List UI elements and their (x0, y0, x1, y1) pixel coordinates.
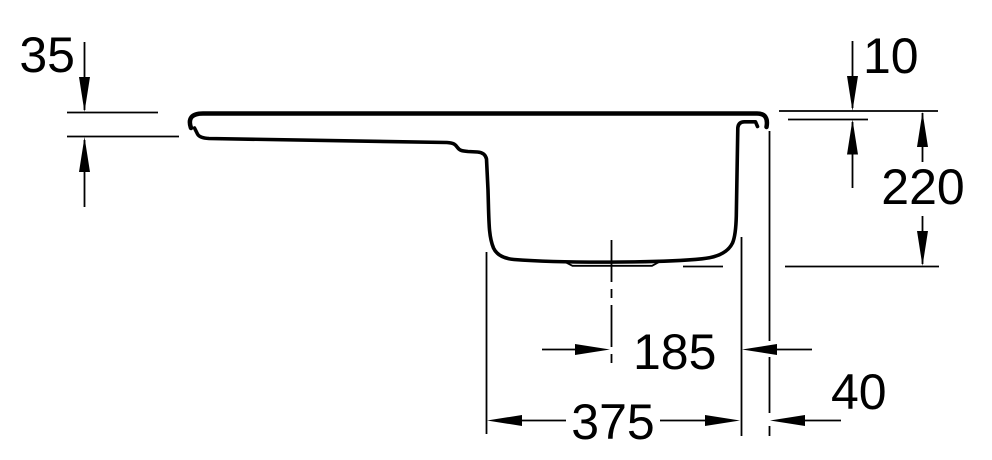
arrow-down (847, 76, 858, 111)
dimension-label-220: 220 (881, 159, 964, 215)
dimension-label-185: 185 (633, 324, 716, 380)
sink-top-surface (190, 114, 767, 129)
arrow-left (487, 415, 522, 426)
dimension-label-10: 10 (863, 28, 919, 84)
arrow-right (575, 344, 610, 355)
technical-drawing-canvas: 35 10 220 185 (0, 0, 992, 460)
dimension-185: 185 (542, 324, 812, 380)
dimension-375-40: 375 40 (487, 131, 887, 450)
arrow-down (79, 77, 90, 112)
arrow-left (742, 344, 777, 355)
dimension-35: 35 (19, 27, 179, 207)
arrow-up (847, 120, 858, 155)
dimension-label-375: 375 (571, 394, 654, 450)
arrow-right (705, 415, 740, 426)
arrow-left (770, 415, 805, 426)
arrow-down (917, 231, 928, 266)
sink-section-drawing: 35 10 220 185 (0, 0, 992, 460)
arrow-up (917, 112, 928, 147)
dimension-label-40: 40 (831, 364, 887, 420)
sink-body-profile (195, 122, 758, 262)
dimension-label-35: 35 (19, 27, 75, 83)
dimension-220: 220 (683, 112, 965, 267)
arrow-up (79, 137, 90, 172)
